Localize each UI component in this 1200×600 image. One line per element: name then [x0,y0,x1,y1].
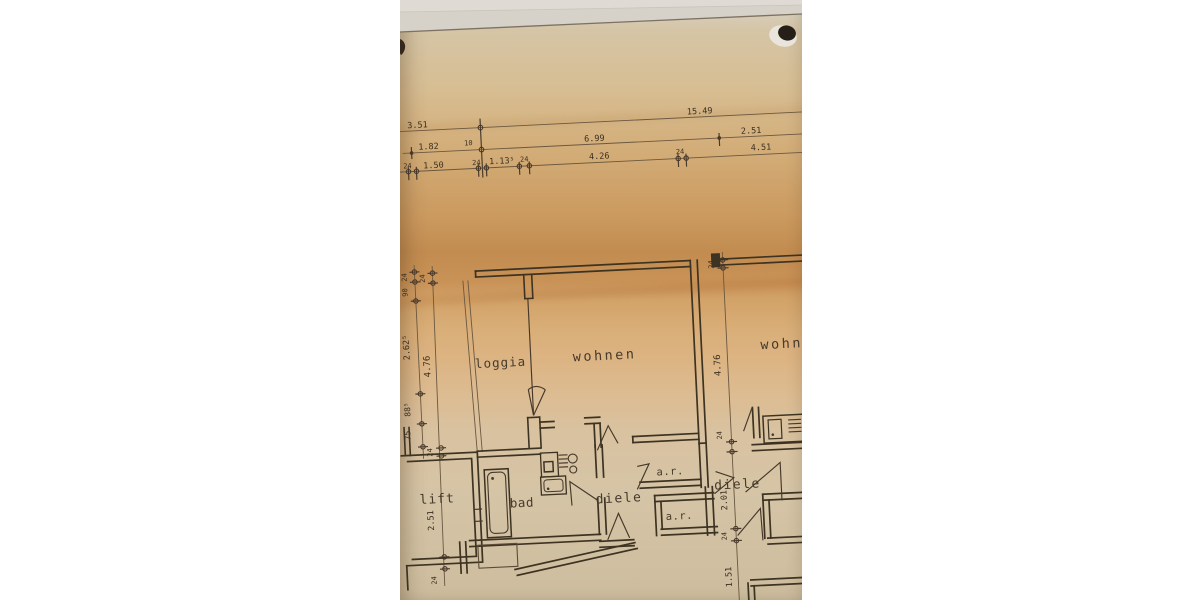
right-dimension-chain: 24 4.76 24 2.01 24 1.51 [707,252,745,600]
paper-smudge [400,277,802,307]
room-label-loggia: loggia [475,354,527,371]
room-label-ar2: a.r. [665,510,693,523]
dim-label: 4.51 [751,142,772,153]
dim-label: 90 [401,288,409,297]
door-leaf [570,480,598,505]
dim-label: 24 [400,273,408,282]
dim-label: 1.82 [418,142,439,153]
dim-label: 4.76 [713,354,724,376]
dimension-row-3: 24 1.50 24 1.13⁵ 24 4.26 24 4.51 [400,141,802,181]
right-unit-walls [731,404,802,600]
plan-group: 3.51 15.49 1.82 10 6.99 2.51 [400,101,802,600]
door-leaf [528,386,546,416]
dim-label: 2.62⁵ [401,334,412,360]
dim-label: 1.50 [423,160,444,171]
room-label-bad: bad [509,494,534,510]
dim-label: 24 [720,532,728,541]
room-label-lift: lift [419,491,455,508]
screenshot: 3.51 15.49 1.82 10 6.99 2.51 [0,0,1200,600]
room-label-ar1: a.r. [656,465,684,478]
bathtub [484,469,511,538]
paper-top-edge [400,0,802,32]
room-label-diele: diele [595,490,642,507]
room-label-diele-right: diele [714,476,761,493]
ar1-walls [633,433,702,489]
dim-label: 10 [464,139,473,147]
washbasin [541,476,567,495]
wohnen-south-walls [540,416,619,453]
kitchen-counter [763,414,802,443]
wc-fixtures [540,451,578,477]
dim-label: 24 [430,576,438,585]
floorplan-photo: 3.51 15.49 1.82 10 6.99 2.51 [400,0,802,600]
dim-label: 24 [676,148,685,156]
floorplan-drawing: 3.51 15.49 1.82 10 6.99 2.51 [400,0,802,600]
punched-hole [767,22,799,49]
dim-label: 24 [426,448,434,457]
dim-markers [406,154,689,181]
dim-label: 3.51 [407,120,428,131]
edge-mark [400,39,405,55]
door-leaf [606,513,629,540]
dim-label: 2.51 [426,510,437,531]
dim-label: 6.99 [584,134,605,145]
dim-label: 4.76 [423,355,434,377]
dim-label: 24 [419,274,427,283]
bottom-walls [406,533,639,589]
room-label-wohnen-right: wohnen [760,334,802,353]
dim-label: 1.13⁵ [489,156,515,167]
dim-label: 24 [520,155,529,163]
dim-label: 88⁵ [403,402,413,417]
door-leaf [736,508,763,541]
dim-label: 2.51 [741,126,762,137]
dim-label: 15.49 [687,106,713,117]
door-leaf [636,464,650,490]
dim-label: 24 [716,431,724,440]
dim-label: 4.26 [589,151,610,162]
dim-label: 1.51 [724,567,735,588]
left-dimension-chain-inner: 24 4.76 24 2.51 24 [414,266,453,587]
room-label-wohnen: wohnen [572,346,636,365]
